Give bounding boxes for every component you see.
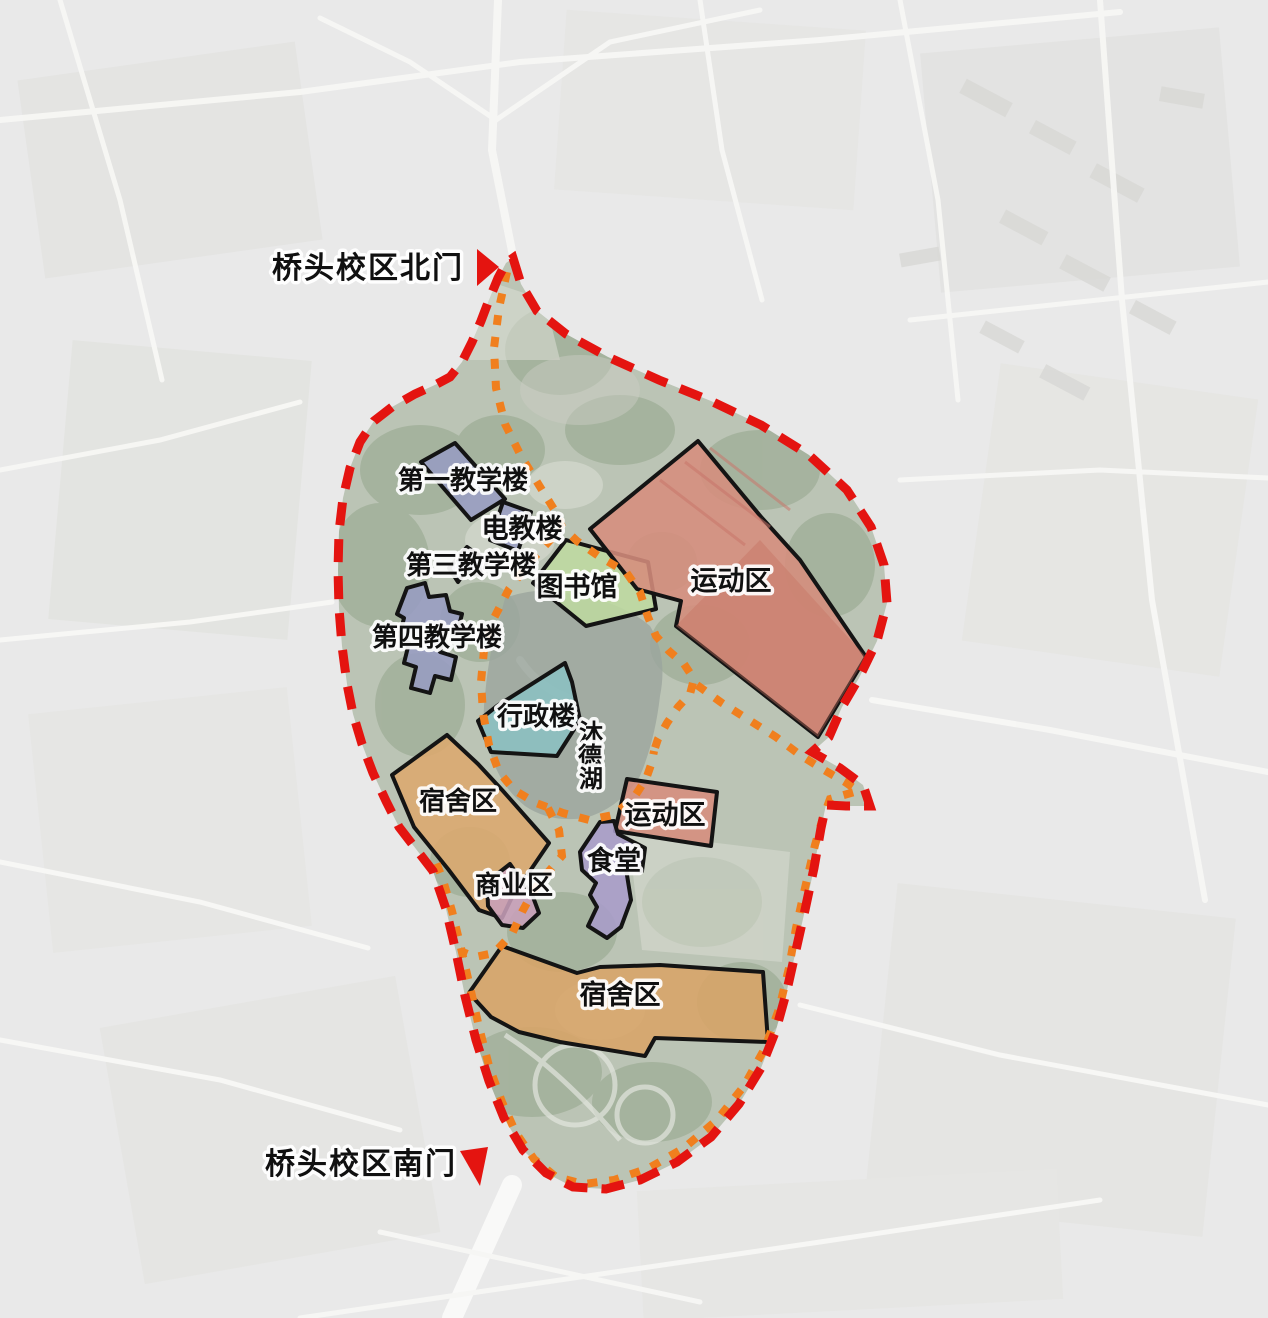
label-teaching-building-4: 第四教学楼 — [372, 622, 502, 653]
label-teaching-building-1: 第一教学楼 — [398, 465, 528, 496]
label-av-education-building: 电教楼 — [482, 514, 563, 545]
campus-map: 第一教学楼 电教楼 第三教学楼 第四教学楼 图书馆 运动区 行政楼 宿舍区 商业… — [0, 0, 1268, 1318]
label-sports-area-central: 运动区 — [625, 800, 706, 831]
south-gate-label: 桥头校区南门 — [265, 1147, 457, 1182]
label-teaching-building-3: 第三教学楼 — [406, 550, 536, 581]
north-gate-label: 桥头校区北门 — [272, 251, 464, 286]
label-commercial-area: 商业区 — [475, 870, 553, 901]
label-canteen: 食堂 — [587, 845, 641, 877]
label-lake: 沐 德 湖 — [578, 719, 603, 793]
label-dormitory-area-west: 宿舍区 — [419, 786, 497, 817]
label-dormitory-area-south: 宿舍区 — [580, 979, 661, 1011]
lake-char-3: 湖 — [579, 765, 603, 793]
label-sports-area-north: 运动区 — [691, 566, 772, 597]
campus-map-canvas: 第一教学楼 电教楼 第三教学楼 第四教学楼 图书馆 运动区 行政楼 宿舍区 商业… — [0, 0, 1268, 1318]
label-admin-building: 行政楼 — [496, 701, 575, 732]
label-library: 图书馆 — [537, 571, 618, 603]
